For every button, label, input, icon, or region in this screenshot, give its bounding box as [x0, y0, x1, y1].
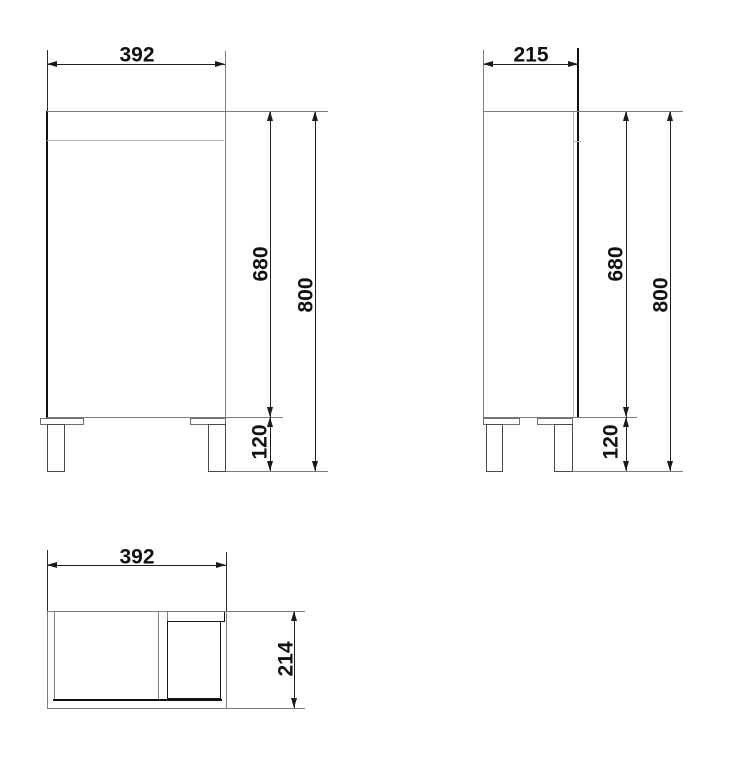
- side-leg-height-label: 120: [601, 424, 622, 459]
- front-total-height-label: 800: [296, 277, 317, 312]
- technical-drawing-canvas: 392 680 120 800 215 680 120 800: [0, 0, 733, 769]
- arrowhead-down-icon: [667, 461, 673, 471]
- front-right-edge: [225, 51, 226, 418]
- front-leg-height-label: 120: [250, 424, 271, 459]
- arrowhead-up-icon: [623, 111, 629, 121]
- plan-width-label: 392: [119, 547, 154, 568]
- front-door-left-edge: [46, 111, 48, 418]
- plan-divider-line-1: [158, 611, 159, 700]
- front-right-leg: [208, 424, 226, 472]
- side-carcass-front-edge: [573, 111, 574, 418]
- side-door-front-edge: [577, 48, 579, 418]
- arrowhead-down-icon: [312, 461, 318, 471]
- arrowhead-down-icon: [267, 461, 273, 471]
- side-floor-extension-line: [573, 471, 683, 472]
- plan-left-panel-line: [54, 611, 55, 700]
- plan-inner-box: [167, 621, 221, 699]
- plan-extension-line-left: [47, 550, 48, 611]
- side-carcass-height-label: 680: [606, 246, 627, 281]
- side-back-leg: [486, 424, 503, 472]
- front-left-leg: [47, 424, 65, 472]
- plan-door-front-line: [53, 699, 222, 701]
- arrowhead-left-icon: [47, 562, 57, 568]
- side-top-edge: [483, 111, 683, 112]
- plan-depth-label: 214: [276, 641, 297, 676]
- side-total-height-label: 800: [651, 277, 672, 312]
- side-front-leg: [554, 424, 573, 472]
- plan-inner-box-step-edge: [224, 612, 225, 622]
- plan-extension-line-right: [226, 552, 227, 611]
- arrowhead-left-icon: [47, 61, 57, 67]
- arrowhead-right-icon: [216, 562, 226, 568]
- arrowhead-down-icon: [623, 407, 629, 417]
- arrowhead-left-icon: [483, 61, 493, 67]
- side-door-tick-line: [573, 141, 581, 142]
- front-top-edge: [47, 111, 328, 112]
- front-width-label: 392: [119, 45, 154, 66]
- arrowhead-down-icon: [267, 407, 273, 417]
- arrowhead-up-icon: [291, 611, 297, 621]
- front-top-strip-line: [47, 140, 224, 141]
- arrowhead-up-icon: [267, 111, 273, 121]
- side-back-edge: [483, 50, 484, 418]
- arrowhead-up-icon: [667, 111, 673, 121]
- arrowhead-up-icon: [312, 111, 318, 121]
- front-carcass-height-label: 680: [251, 246, 272, 281]
- plan-bottom-extension-line: [226, 708, 305, 709]
- front-floor-extension-line: [226, 471, 328, 472]
- arrowhead-right-icon: [215, 61, 225, 67]
- arrowhead-up-icon: [623, 417, 629, 427]
- arrowhead-down-icon: [291, 698, 297, 708]
- arrowhead-right-icon: [568, 61, 578, 67]
- side-depth-label: 215: [513, 45, 548, 66]
- front-extension-line-left: [47, 50, 48, 111]
- arrowhead-down-icon: [623, 461, 629, 471]
